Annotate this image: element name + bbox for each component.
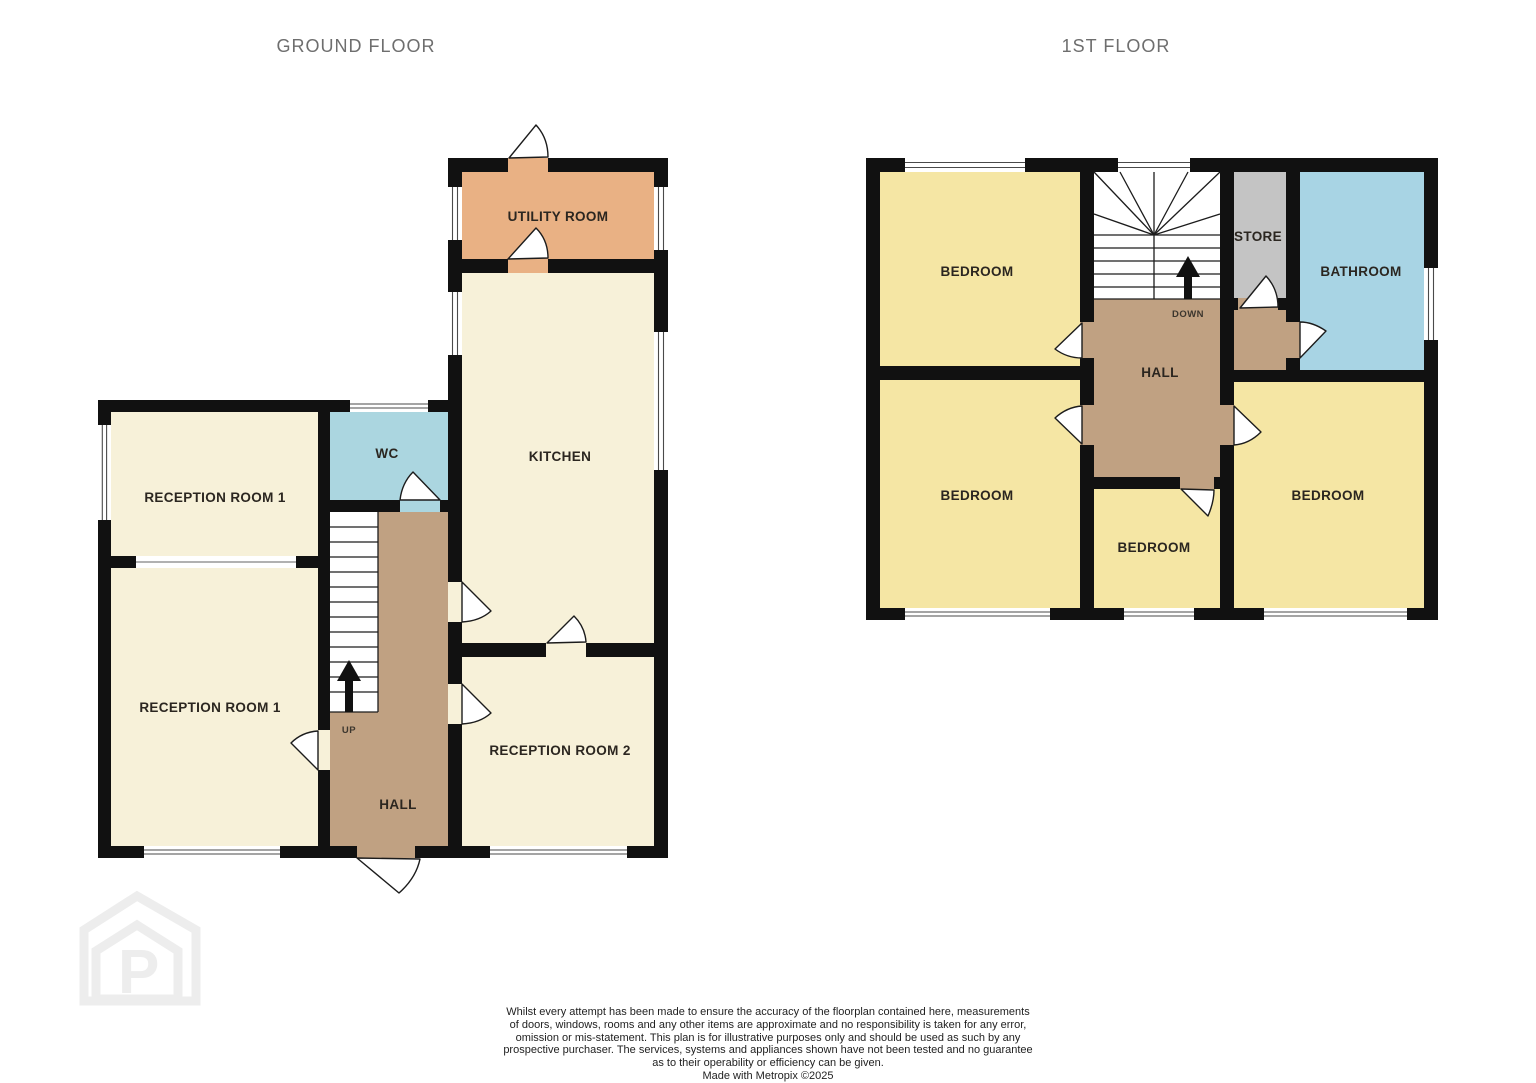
- metropix-watermark: P: [84, 896, 196, 1007]
- label-wc: WC: [375, 446, 398, 461]
- label-bathroom: BATHROOM: [1320, 264, 1401, 279]
- metropix-credit: Made with Metropix ©2025: [0, 1070, 1536, 1083]
- room-reception-1-front: [111, 412, 318, 556]
- window-bedroom-bottom-left: [905, 608, 1050, 620]
- label-bedroom-right: BEDROOM: [1292, 488, 1365, 503]
- label-reception-2: RECEPTION ROOM 2: [489, 743, 630, 758]
- ground-floor-plan: UTILITY ROOM KITCHEN WC RECEPTION ROOM 1…: [98, 125, 668, 893]
- label-reception-1-front: RECEPTION ROOM 1: [144, 490, 286, 505]
- disclaimer: Whilst every attempt has been made to en…: [0, 1006, 1536, 1083]
- label-reception-1-back: RECEPTION ROOM 1: [139, 700, 281, 715]
- gap-utility-kitchen: [508, 259, 548, 273]
- stairs-down-arrow-shaft: [1184, 275, 1192, 299]
- label-hall-first: HALL: [1141, 365, 1178, 380]
- first-floor-plan: BEDROOM STORE BATHROOM HALL BEDROOM BEDR…: [866, 158, 1438, 620]
- gap-bedroom-right: [1220, 405, 1234, 445]
- gap-hall-reception-1: [318, 730, 330, 770]
- gap-bedroom-middle: [1180, 477, 1214, 489]
- disclaimer-line: Whilst every attempt has been made to en…: [0, 1006, 1536, 1019]
- window-kitchen-left: [448, 292, 462, 355]
- window-stairwell-top: [1118, 158, 1190, 172]
- gap-hall-reception-2: [448, 684, 462, 724]
- label-bedroom-bottom-left: BEDROOM: [941, 488, 1014, 503]
- window-reception-2-bottom: [490, 846, 627, 858]
- stairs-up-arrow-shaft: [345, 679, 353, 712]
- watermark-letter: P: [118, 938, 159, 1007]
- window-utility-left: [448, 187, 462, 240]
- label-stairs-down: DOWN: [1172, 309, 1204, 320]
- disclaimer-line: of doors, windows, rooms and any other i…: [0, 1019, 1536, 1032]
- gap-utility-exterior: [508, 158, 548, 172]
- first-floor-title: 1ST FLOOR: [1062, 36, 1171, 56]
- gap-bathroom: [1286, 322, 1300, 358]
- ground-floor-title: GROUND FLOOR: [276, 36, 435, 56]
- door-utility-exterior: [509, 125, 548, 158]
- window-bedroom-right: [1264, 608, 1407, 620]
- label-bedroom-middle: BEDROOM: [1118, 540, 1191, 555]
- window-reception-1-bottom: [144, 846, 280, 858]
- window-reception-1-left: [98, 425, 111, 520]
- window-wc-top: [350, 400, 428, 412]
- window-utility-right: [654, 187, 668, 250]
- door-front-entrance: [357, 858, 420, 893]
- gap-hall-kitchen: [448, 582, 462, 622]
- label-bedroom-top-left: BEDROOM: [941, 264, 1014, 279]
- label-stairs-up: UP: [342, 725, 356, 736]
- window-kitchen-right: [654, 332, 668, 470]
- floorplan-canvas: P GROUND FLOOR 1ST FLOOR: [0, 0, 1536, 1080]
- window-bedroom-top-left: [905, 158, 1025, 172]
- window-bedroom-middle: [1124, 608, 1194, 620]
- gap-kitchen-reception-2: [546, 643, 586, 657]
- label-hall-ground: HALL: [379, 797, 416, 812]
- label-kitchen: KITCHEN: [529, 449, 591, 464]
- window-bathroom-right: [1424, 268, 1438, 340]
- gap-front-door: [357, 846, 415, 858]
- gap-hall-wc: [400, 500, 440, 512]
- disclaimer-line: prospective purchaser. The services, sys…: [0, 1044, 1536, 1057]
- label-store: STORE: [1234, 229, 1282, 244]
- disclaimer-line: as to their operability or efficiency ca…: [0, 1057, 1536, 1070]
- disclaimer-line: omission or mis-statement. This plan is …: [0, 1032, 1536, 1045]
- label-utility-room: UTILITY ROOM: [508, 209, 609, 224]
